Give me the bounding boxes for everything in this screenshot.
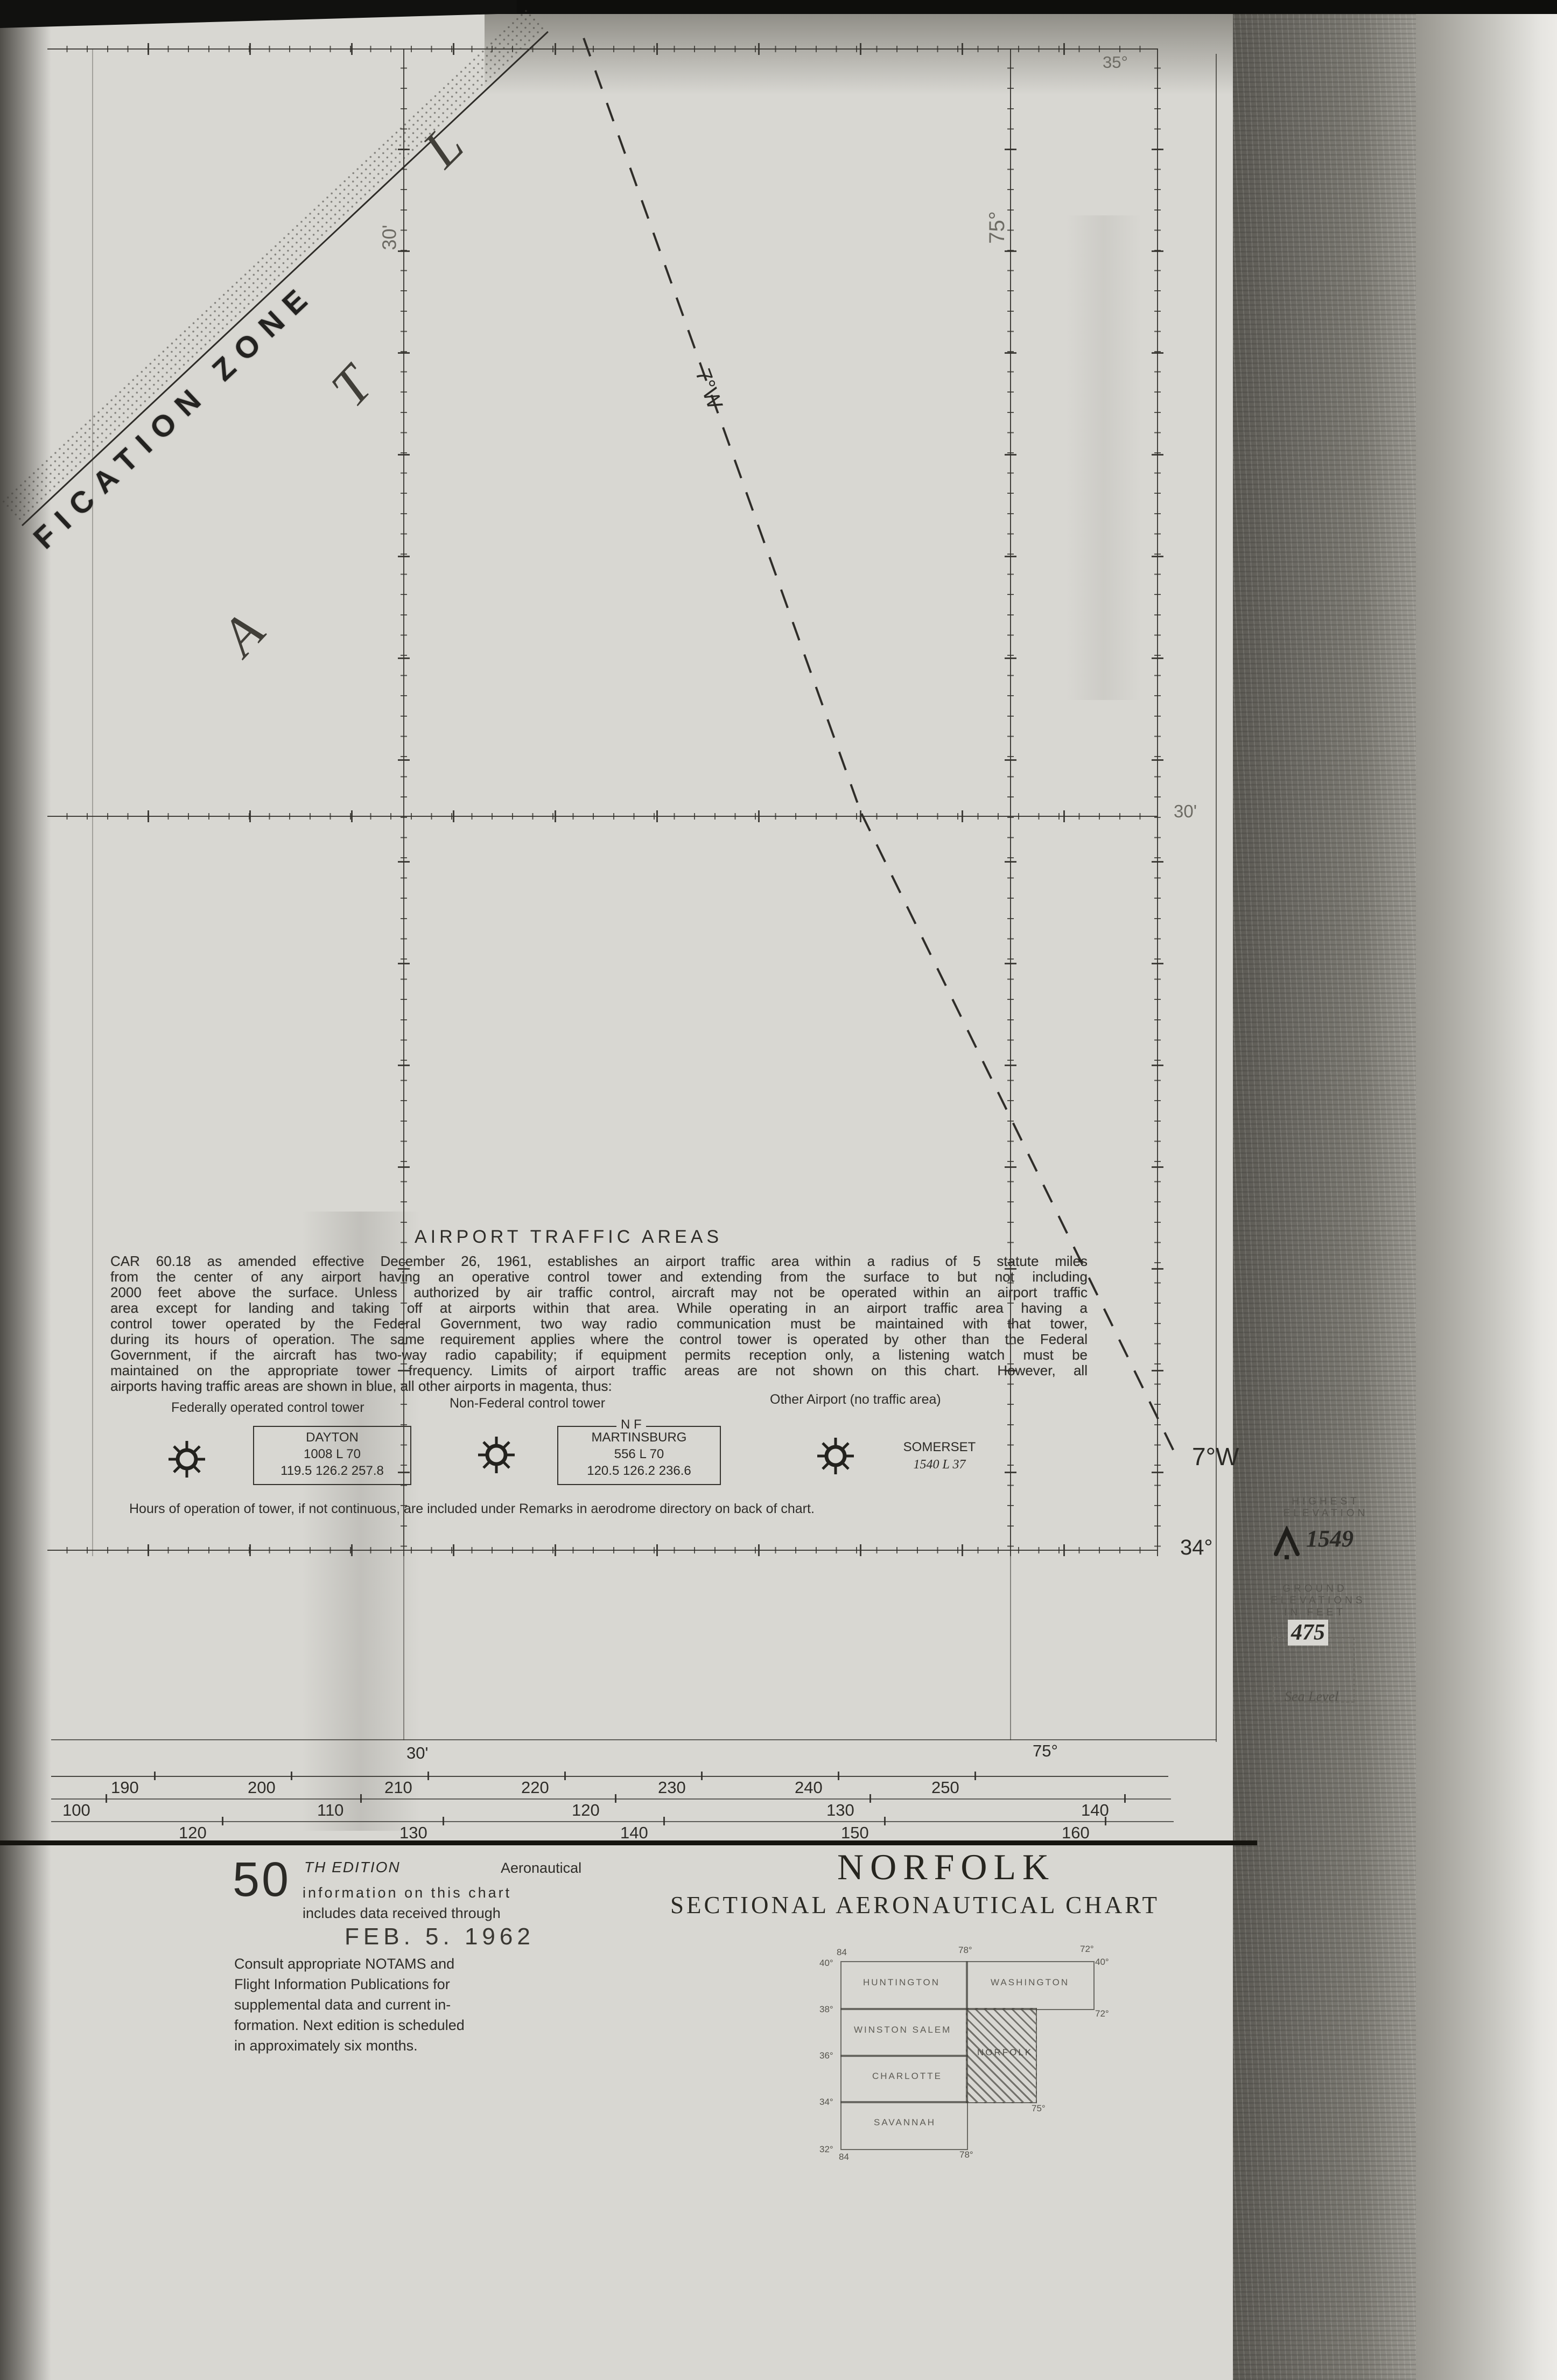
scale-label: 120 (572, 1801, 600, 1820)
adiz-stipple (0, 8, 546, 524)
airport-freqs: 119.5 126.2 257.8 (254, 1462, 410, 1479)
meridian-75deg-label: 75° (985, 211, 1009, 244)
edition-line: information on this chart (303, 1882, 511, 1903)
ocean-letter-a: A (209, 601, 277, 667)
highest-elevation-caption: HIGHEST ELEVATION (1281, 1496, 1370, 1520)
parallel-34-30 (47, 810, 1158, 822)
edition-intro: Aeronautical (501, 1858, 581, 1878)
scale-label: 110 (317, 1801, 343, 1820)
scale-tick (1105, 1817, 1106, 1825)
caption-line: GROUND (1271, 1583, 1359, 1595)
index-label: CHARLOTTE (872, 2071, 942, 2082)
scale-tick (615, 1794, 616, 1803)
scale-ruler-1 (51, 1776, 1168, 1777)
edition-number: 50 (233, 1852, 291, 1908)
bottom-lon-75deg: 75° (1033, 1741, 1058, 1761)
scale-tick (1124, 1794, 1126, 1803)
scale-tick (360, 1794, 362, 1803)
latitude-label-34: 34° (1180, 1536, 1213, 1560)
scale-tick (838, 1772, 839, 1780)
scale-ruler-2 (51, 1798, 1171, 1800)
meridian-stub-75 (1010, 1556, 1011, 1740)
isogonic-label-mid: 7°W (690, 366, 727, 412)
edition-consult-block: Consult appropriate NOTAMS and Flight In… (234, 1954, 611, 2056)
index-label: WASHINGTON (991, 1977, 1069, 1988)
legend-somerset: SOMERSET 1540 L 37 (869, 1439, 1009, 1473)
index-coord: 72° (1095, 2008, 1109, 2019)
scale-tick (427, 1772, 429, 1780)
scale-label: 200 (248, 1778, 276, 1797)
scale-label: 190 (111, 1778, 139, 1797)
isogonic-line-upper (583, 38, 862, 814)
parallel-30min-label: 30' (1174, 801, 1197, 822)
edition-date: FEB. 5. 1962 (345, 1923, 535, 1950)
airport-symbol-federal-icon (164, 1437, 209, 1482)
scale-tick (291, 1772, 292, 1780)
scanned-chart-page: { "map": { "adiz_text": "FICATION ZONE",… (0, 0, 1557, 2380)
scale-label: 120 (179, 1823, 207, 1843)
index-coord: 32° (819, 2144, 833, 2155)
index-coord: 84 (839, 2152, 849, 2162)
scale-label: 130 (826, 1801, 854, 1820)
index-label: HUNTINGTON (863, 1977, 940, 1988)
legend-dayton-box: DAYTON 1008 L 70 119.5 126.2 257.8 (253, 1426, 411, 1485)
airport-name: DAYTON (254, 1429, 410, 1446)
scan-top-corner (0, 0, 517, 28)
edition-line: formation. Next edition is scheduled (234, 2015, 611, 2035)
scale-tick (564, 1772, 566, 1780)
scale-label: 210 (384, 1778, 412, 1797)
airport-name: SOMERSET (869, 1439, 1009, 1456)
scale-tick (869, 1794, 871, 1803)
paragraph-line: control tower operated by the Federal Go… (110, 1316, 1088, 1332)
traffic-areas-title: AIRPORT TRAFFIC AREAS (415, 1227, 723, 1248)
chart-subtitle: SECTIONAL AERONAUTICAL CHART (670, 1891, 1160, 1919)
index-label: SAVANNAH (874, 2117, 936, 2128)
index-coord: 40° (819, 1958, 833, 1969)
highest-elevation-value: 1549 (1306, 1525, 1353, 1552)
paragraph-line: during its hours of operation. The same … (110, 1332, 1088, 1347)
legend-nonfederal-header: Non-Federal control tower (450, 1396, 605, 1411)
index-coord: 84 (837, 1947, 847, 1958)
sheet-trim-line (0, 1840, 1257, 1845)
index-coord: 78° (958, 1945, 972, 1956)
edition-line: supplemental data and current in- (234, 1994, 611, 2015)
chart-title: NORFOLK (837, 1846, 1055, 1888)
map-bottom-border (47, 1544, 1158, 1556)
paragraph-line: 2000 feet above the surface. Unless auth… (110, 1285, 1088, 1300)
isogonic-label-end: 7°W (1192, 1442, 1239, 1471)
scale-tick (974, 1772, 976, 1780)
legend-nf-tag: N F (616, 1417, 646, 1432)
outer-neatline-bottom (51, 1739, 1217, 1740)
index-coord: 34° (819, 2097, 833, 2108)
edition-line: Consult appropriate NOTAMS and (234, 1954, 611, 1974)
map-top-border (47, 43, 1158, 55)
scale-label: 230 (658, 1778, 686, 1797)
edition-line: Flight Information Publications for (234, 1974, 611, 1994)
caption-line: ELEVATIONS (1271, 1595, 1359, 1607)
scale-label: 130 (399, 1823, 427, 1843)
scale-tick (154, 1772, 156, 1780)
index-label: NORFOLK (977, 2047, 1033, 2058)
legend-other-header: Other Airport (no traffic area) (770, 1392, 941, 1408)
adiz-label: FICATION ZONE (26, 36, 576, 556)
ground-elevations-caption: GROUND ELEVATIONS IN FEET (1271, 1583, 1359, 1619)
scan-left-edge (0, 0, 51, 2380)
index-coord: 38° (819, 2004, 833, 2015)
index-map: HUNTINGTON WASHINGTON WINSTON SALEM NORF… (823, 1944, 1124, 2170)
meridian-faint (92, 48, 93, 1556)
edition-line: includes data received through (303, 1903, 501, 1923)
paragraph-line: Government, if the aircraft has two-way … (110, 1347, 1088, 1363)
traffic-areas-paragraph: CAR 60.18 as amended effective December … (110, 1254, 1088, 1394)
index-coord: 75° (1032, 2103, 1046, 2114)
scale-label: 160 (1062, 1823, 1090, 1843)
airport-data: 1540 L 37 (869, 1456, 1009, 1473)
adiz-boundary-band: FICATION ZONE (22, 31, 576, 556)
scale-tick (663, 1817, 665, 1825)
paragraph-line: maintained on the appropriate tower freq… (110, 1363, 1088, 1378)
scale-label: 150 (841, 1823, 869, 1843)
index-label: WINSTON SALEM (854, 2025, 951, 2035)
scale-ruler-3 (51, 1821, 1174, 1822)
airport-data: 556 L 70 (558, 1446, 720, 1462)
caption-line: IN FEET (1271, 1607, 1359, 1619)
latitude-label-35: 35° (1103, 53, 1128, 72)
paragraph-line: area except for landing and taking off a… (110, 1300, 1088, 1316)
scale-tick (222, 1817, 223, 1825)
ocean-letter-t: T (319, 354, 384, 418)
scan-right-noise (1233, 0, 1416, 2380)
edition-line: in approximately six months. (234, 2035, 611, 2056)
scale-tick (884, 1817, 886, 1825)
edition-suffix: TH EDITION (304, 1859, 401, 1876)
index-coord: 78° (959, 2150, 973, 2160)
scale-tick (701, 1772, 703, 1780)
hours-note: Hours of operation of tower, if not cont… (129, 1501, 815, 1517)
scan-smudge (1066, 215, 1141, 700)
airport-data: 1008 L 70 (254, 1446, 410, 1462)
scale-tick (106, 1794, 107, 1803)
caption-line: HIGHEST (1281, 1496, 1370, 1508)
meridian-stub-30 (403, 1556, 404, 1740)
index-coord: 36° (819, 2050, 833, 2061)
bottom-lon-30min: 30' (406, 1744, 428, 1763)
scale-label: 100 (62, 1801, 90, 1820)
paragraph-line: from the center of any airport having an… (110, 1269, 1088, 1285)
index-coord: 72° (1080, 1944, 1094, 1955)
airport-symbol-other-icon (813, 1433, 858, 1479)
map-right-border (1152, 48, 1163, 1556)
airport-symbol-nonfederal-icon (474, 1432, 519, 1478)
scale-tick (443, 1817, 444, 1825)
sea-level-label: Sea Level (1285, 1689, 1338, 1705)
paragraph-line: airports having traffic areas are shown … (110, 1378, 1088, 1394)
ground-elevation-value: 475 (1288, 1620, 1328, 1646)
scale-label: 250 (931, 1778, 959, 1797)
scale-label: 140 (620, 1823, 648, 1843)
scale-label: 220 (521, 1778, 549, 1797)
caption-line: ELEVATION (1281, 1508, 1370, 1520)
legend-federal-header: Federally operated control tower (171, 1400, 364, 1416)
legend-martinsburg-box: MARTINSBURG 556 L 70 120.5 126.2 236.6 (557, 1426, 721, 1485)
scale-label: 240 (795, 1778, 823, 1797)
peak-icon (1272, 1526, 1302, 1559)
index-coord: 40° (1095, 1957, 1109, 1968)
adiz-line (22, 31, 549, 526)
airport-freqs: 120.5 126.2 236.6 (558, 1462, 720, 1479)
paragraph-line: CAR 60.18 as amended effective December … (110, 1254, 1088, 1269)
outer-neatline-right (1216, 54, 1217, 1742)
